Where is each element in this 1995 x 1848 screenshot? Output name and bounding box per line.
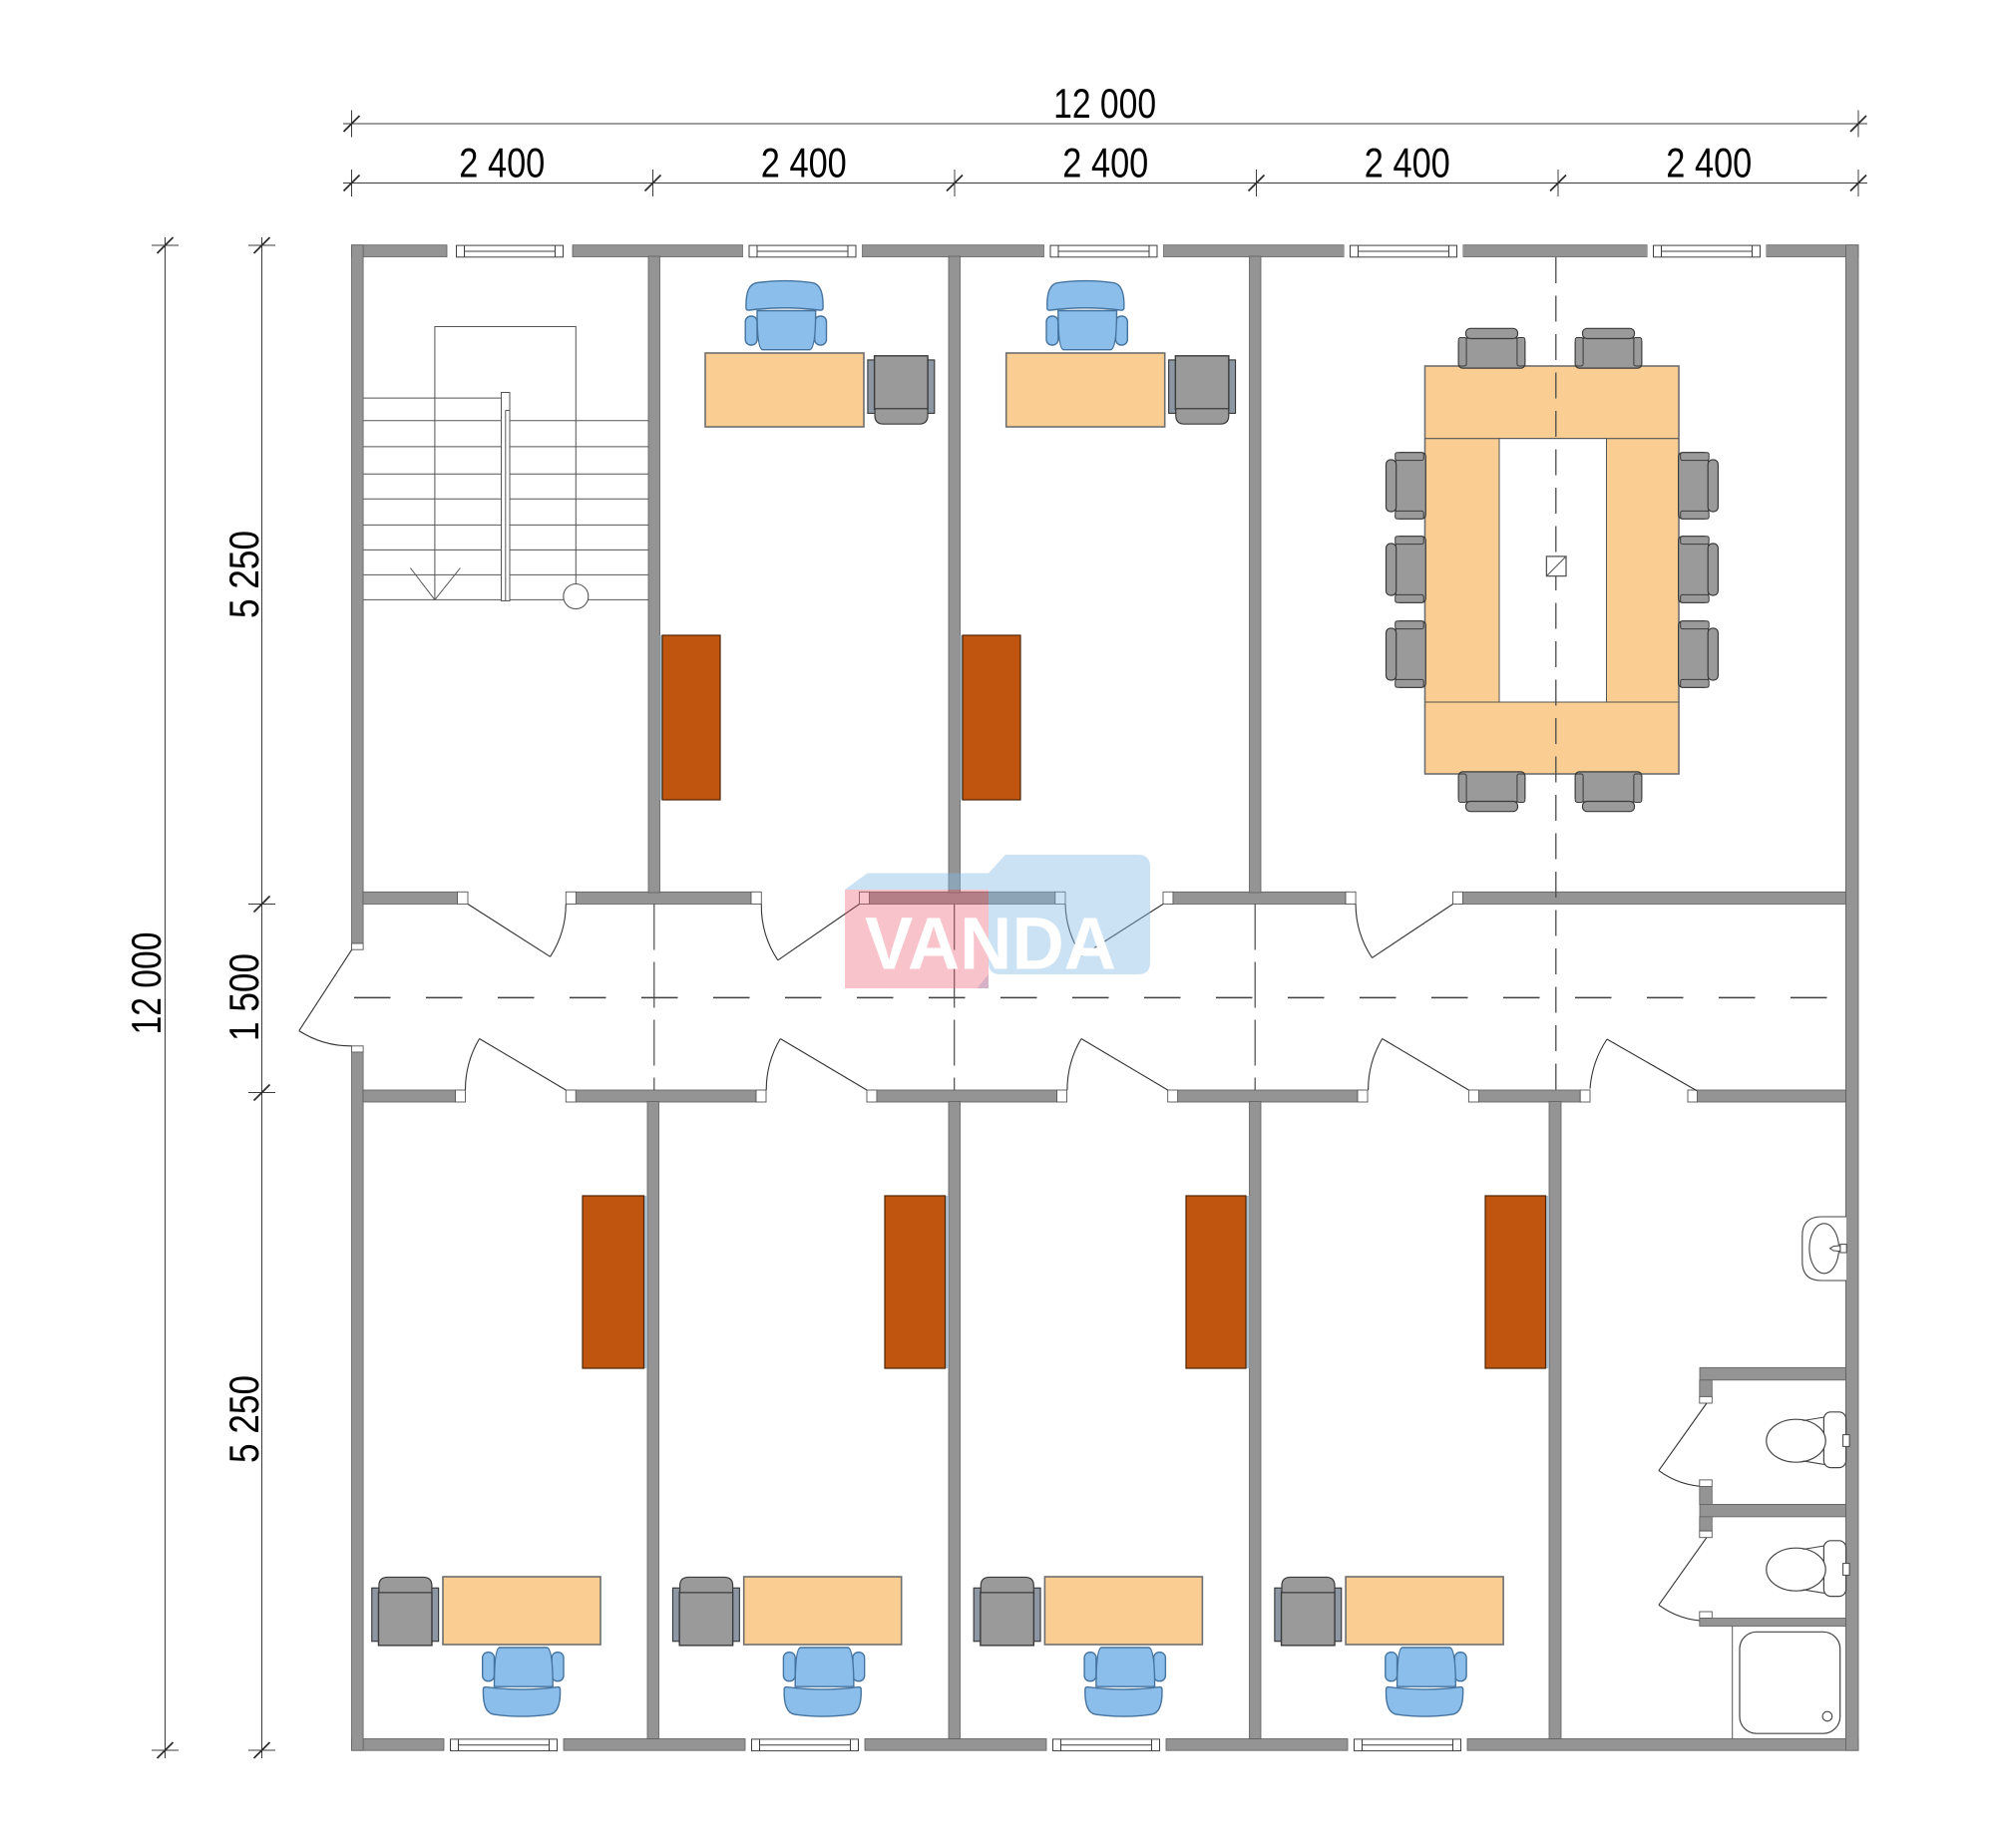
svg-text:2 400: 2 400 — [459, 140, 545, 186]
svg-text:12 000: 12 000 — [1053, 80, 1156, 127]
svg-text:5 250: 5 250 — [220, 531, 267, 618]
svg-text:1 500: 1 500 — [220, 953, 267, 1041]
svg-text:2 400: 2 400 — [1365, 140, 1450, 186]
svg-text:12 000: 12 000 — [123, 932, 170, 1035]
svg-text:2 400: 2 400 — [1666, 140, 1752, 186]
svg-text:5 250: 5 250 — [220, 1375, 267, 1463]
svg-text:2 400: 2 400 — [761, 140, 847, 186]
svg-text:2 400: 2 400 — [1062, 140, 1148, 186]
svg-text:VANDA: VANDA — [865, 903, 1116, 985]
